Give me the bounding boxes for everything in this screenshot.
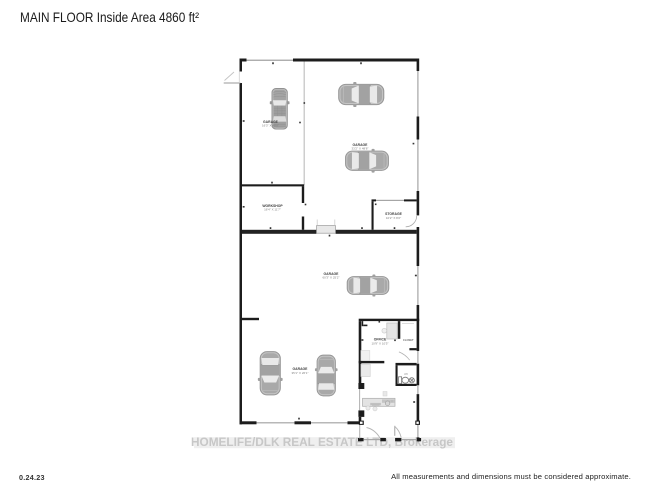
svg-text:HOMELIFE/DLK REAL ESTATE LTD,: HOMELIFE/DLK REAL ESTATE LTD, Brokerage: [191, 435, 453, 449]
svg-text:WR: WR: [404, 374, 408, 376]
svg-text:33'2" X 48'8": 33'2" X 48'8": [352, 147, 369, 151]
svg-text:16'4" X 11'7": 16'4" X 11'7": [264, 208, 281, 212]
svg-text:60'3" X 25'2": 60'3" X 25'2": [323, 276, 340, 280]
svg-text:35'1" X 26'1": 35'1" X 26'1": [292, 371, 309, 375]
svg-text:10'9" X 10'5": 10'9" X 10'5": [372, 341, 389, 345]
svg-text:CLOSET: CLOSET: [403, 338, 414, 342]
svg-text:16'3" X 48'8": 16'3" X 48'8": [262, 124, 279, 128]
svg-text:10'2" X 8'2": 10'2" X 8'2": [386, 216, 401, 220]
